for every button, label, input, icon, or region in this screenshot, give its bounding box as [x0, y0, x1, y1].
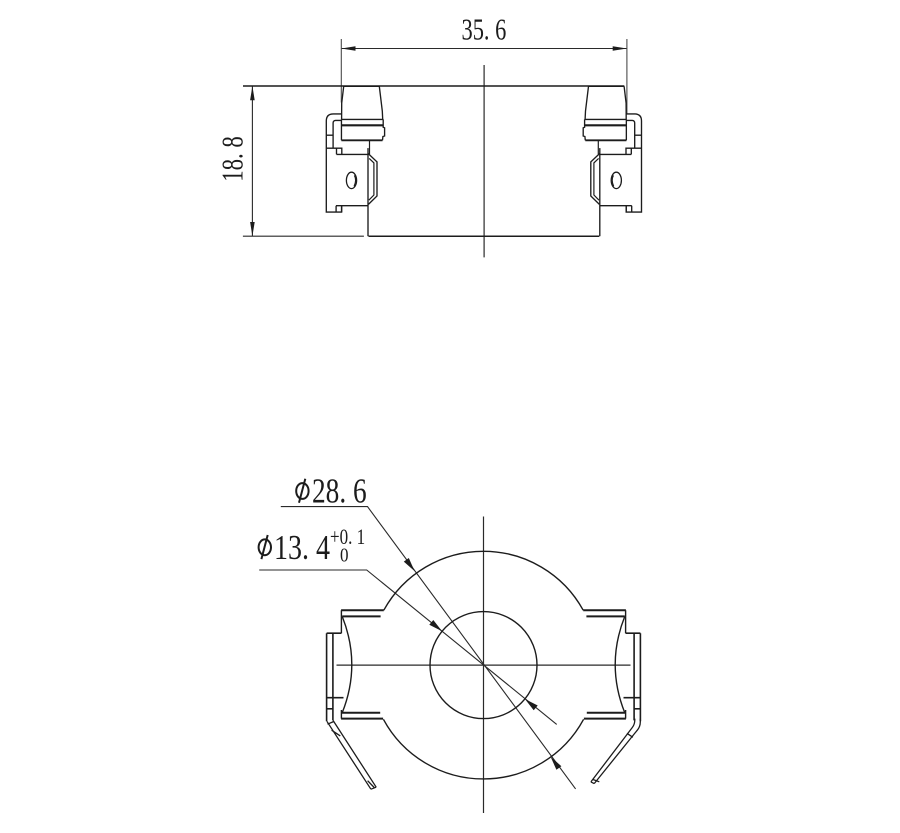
svg-text:0: 0	[340, 545, 349, 567]
svg-text:28. 6: 28. 6	[312, 472, 367, 511]
svg-text:13. 4: 13. 4	[274, 528, 330, 567]
svg-text:35. 6: 35. 6	[462, 12, 507, 47]
svg-text:18. 8: 18. 8	[214, 136, 249, 182]
